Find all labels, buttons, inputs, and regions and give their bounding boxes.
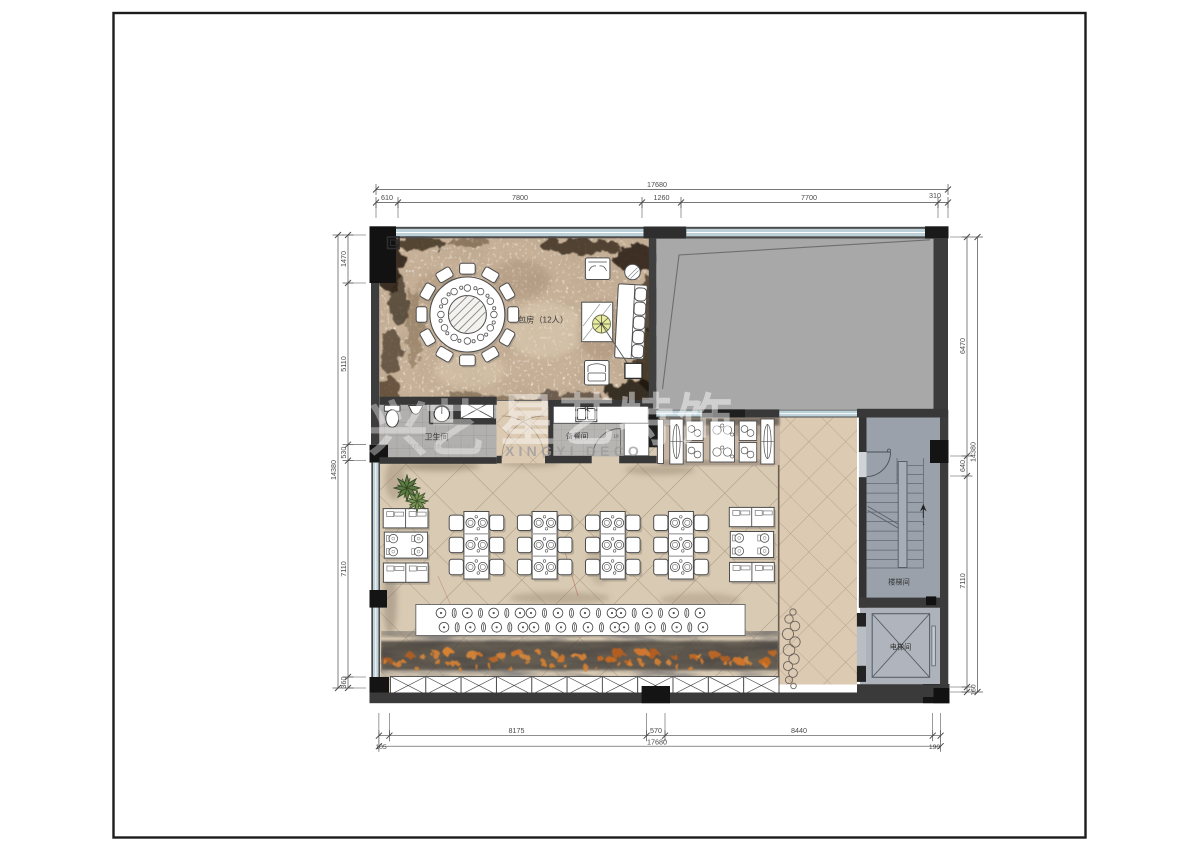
svg-text:14380: 14380	[329, 460, 338, 480]
svg-text:楼梯间: 楼梯间	[888, 578, 910, 587]
svg-text:105: 105	[375, 744, 387, 751]
svg-text:610: 610	[381, 193, 393, 202]
svg-text:17680: 17680	[647, 180, 667, 189]
svg-text:310: 310	[929, 191, 941, 200]
svg-text:兴艺: 兴艺	[368, 396, 482, 463]
svg-text:7700: 7700	[801, 193, 817, 202]
svg-text:14380: 14380	[969, 442, 978, 462]
svg-text:8175: 8175	[509, 726, 525, 735]
svg-text:360: 360	[339, 677, 348, 689]
svg-text:包房（12人）: 包房（12人）	[518, 315, 568, 325]
svg-text:160: 160	[971, 684, 978, 696]
svg-text:MATERIAL DECORATION: MATERIAL DECORATION	[402, 444, 471, 449]
svg-text:8440: 8440	[791, 726, 807, 735]
svg-text:7110: 7110	[958, 573, 967, 588]
svg-text:5110: 5110	[339, 356, 348, 371]
svg-text:6470: 6470	[958, 338, 967, 354]
svg-text:7110: 7110	[339, 561, 348, 576]
svg-text:1260: 1260	[654, 193, 670, 202]
svg-text:电梯间: 电梯间	[890, 643, 912, 652]
svg-text:XINGYI DECO: XINGYI DECO	[505, 443, 643, 459]
svg-text:570: 570	[650, 726, 662, 735]
svg-text:640: 640	[958, 460, 967, 472]
svg-text:530: 530	[339, 447, 348, 459]
svg-text:17680: 17680	[647, 738, 667, 747]
svg-text:1470: 1470	[339, 251, 348, 267]
svg-text:7800: 7800	[512, 193, 528, 202]
svg-text:190: 190	[929, 744, 941, 751]
